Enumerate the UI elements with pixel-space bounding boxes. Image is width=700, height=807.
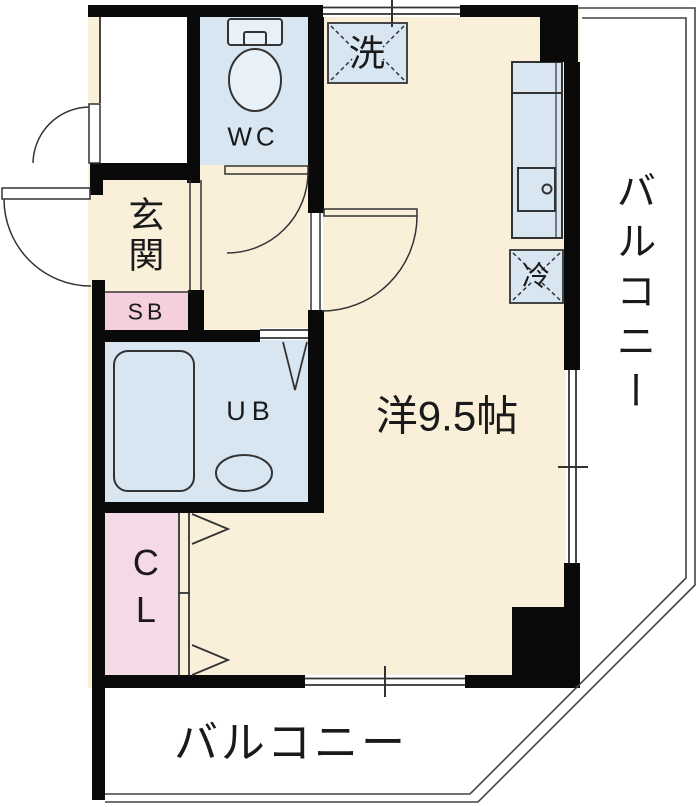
alcove-area: [100, 17, 187, 163]
genkan-label: 玄関: [125, 196, 162, 276]
balcony-right-label: バルコニー: [612, 170, 653, 420]
bathroom-sink-icon: [216, 455, 272, 491]
washer-space-label: 洗: [349, 36, 385, 73]
refrigerator-label: 冷: [522, 263, 550, 292]
bathtub-icon: [114, 351, 194, 491]
kitchen-counter: [512, 62, 562, 238]
floorplan-svg: [0, 0, 700, 807]
balcony-bottom-label: バルコニー: [174, 722, 408, 767]
wc-label: WC: [227, 124, 278, 151]
shoe-box-label: SB: [128, 300, 167, 323]
toilet-icon: [228, 19, 282, 111]
kitchen-door-icon: [518, 168, 555, 211]
unit-bath-label: UB: [226, 398, 276, 426]
entrance-door: [2, 188, 91, 286]
closet-label: CL: [127, 542, 164, 636]
floorplan: WC 玄関 SB UB CL 洋9.5帖 洗 冷 バルコニー バルコニー: [0, 0, 700, 807]
living-room-label: 洋9.5帖: [376, 396, 518, 439]
